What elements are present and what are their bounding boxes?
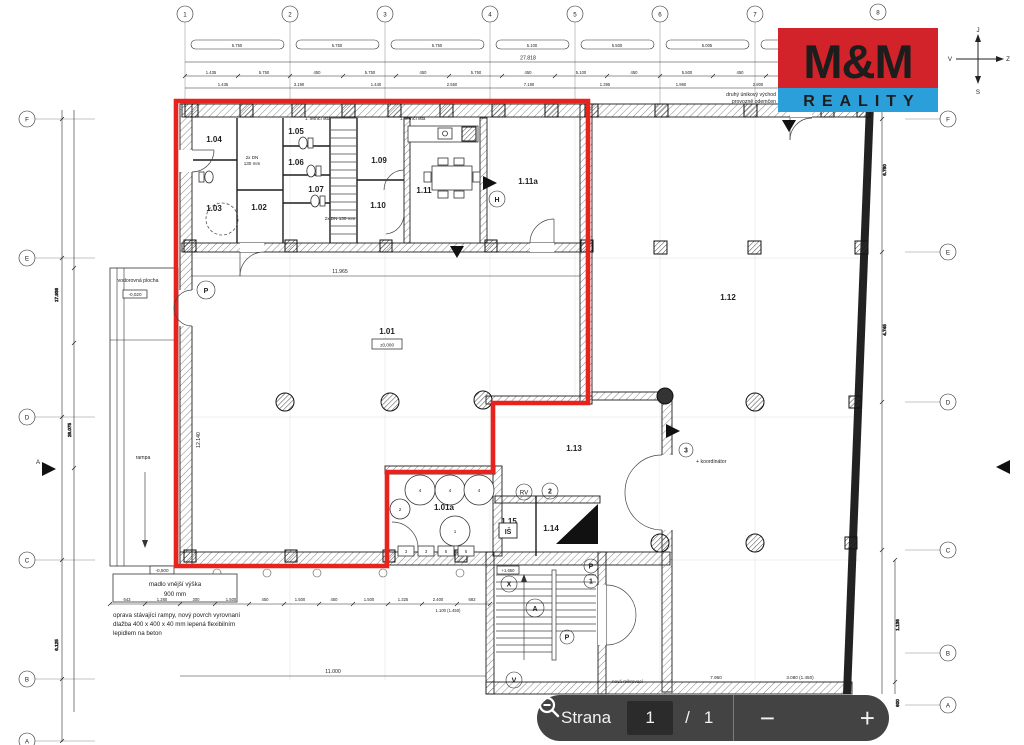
dim: 7.190 — [524, 82, 535, 87]
dim: 6.125 — [54, 639, 59, 651]
annotation: 1. těsnicí lišta — [305, 116, 331, 121]
grid-row-label: A — [946, 703, 951, 710]
madlo-note: madlo vnější výška 900 mm — [113, 574, 237, 602]
dim: 5.750 — [259, 70, 270, 75]
grid-row-label: D — [25, 415, 30, 422]
annotation: + koordinátor — [696, 459, 727, 465]
dim: 5.100 — [527, 43, 538, 48]
dim: 5.750 — [332, 43, 343, 48]
page-label: Strana — [561, 708, 611, 728]
room-label: 1.03 — [206, 204, 222, 213]
dim: 5.750 — [365, 70, 376, 75]
dim: 450 — [262, 597, 270, 602]
grid-col-label: 1 — [183, 12, 187, 19]
marker-label: 2 — [548, 489, 552, 496]
dim: 2.400 — [433, 597, 444, 602]
equipment-label: 1 — [454, 529, 457, 534]
dim: 11.965 — [332, 269, 348, 275]
marker-label: P — [204, 288, 209, 295]
dim: 450 — [314, 70, 322, 75]
toolbar-divider — [733, 695, 734, 741]
annotation: provozně odemčen — [732, 99, 776, 105]
room-label: 1.05 — [288, 127, 304, 136]
right-dimensions: 6.780 4.745 1.136 600 — [880, 104, 900, 707]
logo-text-bottom: REALITY — [803, 93, 920, 110]
annotation: lepidlem na beton — [113, 630, 162, 637]
dim: 683 — [469, 597, 477, 602]
compass-rose: J Z S V — [948, 27, 1010, 96]
dim: 3.080 (1.450) — [786, 675, 814, 680]
compass-letter: Z — [1006, 56, 1010, 63]
annotation: madlo vnější výška — [149, 581, 202, 588]
loading-ramp: vodorovná plocha -0,020 rampa -0,500 — [110, 268, 178, 574]
dim: 2.800 — [753, 82, 764, 87]
annotation: 1. těsnicí lišta — [400, 116, 426, 121]
level-value: ±0,000 — [380, 343, 394, 348]
dim: 450 — [525, 70, 533, 75]
marker-label: 1 — [589, 579, 593, 586]
grid-row-label: D — [946, 400, 951, 407]
floorplan-viewer: 1 2 3 4 5 6 7 8 F E D C B A F E D C B A … — [0, 0, 1024, 745]
building-walls — [180, 104, 874, 694]
room-label: 1.11 — [416, 186, 432, 195]
survey-points — [213, 569, 464, 577]
annotation: rampa — [136, 455, 151, 461]
dim: 4.745 — [882, 324, 887, 336]
magnifier-icon[interactable] — [800, 701, 834, 735]
dim: 5.500 — [682, 70, 693, 75]
dim: 1.325 — [398, 597, 409, 602]
room-label: 1.10 — [370, 201, 386, 210]
dim: 1.960 — [676, 82, 687, 87]
equipment-label: 4 — [478, 488, 481, 493]
room-label: 1.04 — [206, 135, 222, 144]
dim: 450 — [420, 70, 428, 75]
left-dimensions: 17.936 26.075 6.125 — [54, 110, 76, 743]
marker-label: P — [589, 564, 594, 571]
grid-row-markers-right: F E D C B A — [905, 111, 956, 713]
dim: 5.750 — [471, 70, 482, 75]
room-label: 1.13 — [566, 444, 582, 453]
page-separator: / — [685, 708, 690, 728]
page-total: 1 — [704, 708, 713, 728]
grid-row-label: C — [946, 548, 951, 555]
dim: 450 — [331, 597, 339, 602]
dim: 5.750 — [432, 43, 443, 48]
room-label: 1.11a — [518, 177, 538, 186]
grid-col-label: 7 — [753, 12, 757, 19]
mm-reality-logo: M&M REALITY — [778, 28, 938, 112]
grid-row-label: A — [25, 739, 30, 745]
zoom-out-button[interactable]: − — [750, 701, 784, 735]
wc-fixtures — [199, 137, 325, 235]
page-number: 1 — [645, 708, 654, 728]
grid-row-label: B — [946, 651, 950, 658]
room-label: 1.07 — [308, 185, 324, 194]
grid-col-label: 2 — [288, 12, 292, 19]
dim: 1.100 (1.450) — [436, 608, 462, 613]
room-label: 1.01 — [379, 327, 395, 336]
marker-label: A — [532, 606, 537, 613]
marker-label: X — [507, 582, 512, 589]
grid-row-label: F — [25, 117, 29, 124]
grid-col-label: 3 — [383, 12, 387, 19]
room-label: 1.02 — [251, 203, 267, 212]
equipment-1-01a: 4 4 4 2 1 3 3 5 5 — [390, 475, 494, 556]
annotation: dlažba 400 x 400 x 40 mm lepená flexibil… — [113, 621, 235, 628]
logo-text-top: M&M — [803, 35, 912, 88]
dim: 1.500 — [364, 597, 375, 602]
annotation: 2x DN — [246, 155, 259, 160]
annotation: 130 mm — [244, 161, 261, 166]
grid-row-label: B — [25, 677, 29, 684]
oprava-note: oprava stávající rampy, nový povrch vyro… — [113, 612, 240, 637]
floorplan-drawing: 1 2 3 4 5 6 7 8 F E D C B A F E D C B A … — [0, 0, 1024, 745]
dim: 1.280 — [157, 597, 168, 602]
dim: 5.750 — [232, 43, 243, 48]
room-label: 1.01a — [434, 503, 455, 512]
compass-letter: J — [976, 27, 979, 34]
dim: 1.440 — [371, 82, 382, 87]
marker-label: V — [512, 678, 517, 685]
dim: 12.140 — [196, 432, 202, 448]
page-input[interactable]: 1 — [627, 701, 673, 735]
dim: 450 — [737, 70, 745, 75]
dim: 26.075 — [67, 423, 72, 437]
dim: 1.136 — [895, 619, 900, 631]
dim: 11.000 — [325, 669, 341, 675]
dim-total: 27.818 — [520, 56, 536, 62]
marker-label: P — [565, 635, 570, 642]
annotation: vodorovná plocha — [118, 278, 159, 284]
dim: 5.100 — [576, 70, 587, 75]
equipment-label: 4 — [449, 488, 452, 493]
meeting-table — [424, 158, 480, 198]
dim: 1.395 — [600, 82, 611, 87]
marker-label: H — [494, 197, 499, 204]
grid-col-label: 8 — [876, 10, 880, 17]
marker-label: IŠ — [505, 527, 512, 536]
grid-col-label: 6 — [658, 12, 662, 19]
dim: 1.435 — [206, 70, 217, 75]
equipment-label: 4 — [419, 488, 422, 493]
dim: 2.550 — [447, 82, 458, 87]
grid-row-label: E — [946, 250, 950, 257]
equipment-label: 2 — [399, 507, 402, 512]
dim: 17.936 — [54, 288, 59, 302]
ramp-wedge — [556, 504, 598, 544]
grid-col-label: 5 — [573, 12, 577, 19]
room-label: 1.06 — [288, 158, 304, 167]
level-value: -0,020 — [128, 292, 141, 297]
dim: 6.780 — [882, 164, 887, 176]
fixtures: 4 4 4 2 1 3 3 5 5 — [199, 126, 598, 577]
marker-label: 3 — [684, 448, 688, 455]
section-label: A — [36, 459, 41, 466]
viewer-toolbar: Strana 1 / 1 − + — [537, 695, 889, 741]
grid-row-label: F — [946, 117, 950, 124]
dim: 5.500 — [612, 43, 623, 48]
kitchen-counter — [408, 126, 478, 142]
top-dimensions: 5.750 5.750 5.750 5.100 5.500 5.005 5.14… — [183, 40, 874, 88]
grid-col-label: 4 — [488, 12, 492, 19]
room-label: 1.09 — [371, 156, 387, 165]
dim: 643 — [124, 597, 132, 602]
level-value: +1.650 — [502, 568, 516, 573]
room-label: 1.12 — [720, 293, 736, 302]
compass-letter: S — [976, 89, 980, 96]
room-label: 1.14 — [543, 524, 559, 533]
annotation: oprava stávající rampy, nový povrch vyro… — [113, 612, 240, 619]
dim: 5.005 — [702, 43, 713, 48]
annotation: 2x DN 130 mm — [325, 216, 356, 221]
dim: 600 — [895, 699, 900, 707]
grid-col-markers: 1 2 3 4 5 6 7 8 — [177, 4, 886, 22]
annotation: nová mikrovací — [612, 679, 644, 684]
dim: 3.190 — [294, 82, 305, 87]
dim: 1.435 — [218, 82, 229, 87]
dim: 450 — [631, 70, 639, 75]
grid-row-label: C — [25, 558, 30, 565]
grid-row-label: E — [25, 256, 29, 263]
compass-letter: V — [948, 56, 953, 63]
dim: 1.500 — [226, 597, 237, 602]
staircase-upper — [330, 118, 357, 243]
dim: 300 — [193, 597, 201, 602]
dim: 1.500 — [295, 597, 306, 602]
marker-label: RV — [520, 490, 529, 497]
zoom-in-button[interactable]: + — [850, 701, 884, 735]
annotation: druhý únikový východ — [726, 92, 776, 98]
dim: 7.960 — [710, 675, 722, 680]
level-value: -0,500 — [155, 568, 168, 573]
